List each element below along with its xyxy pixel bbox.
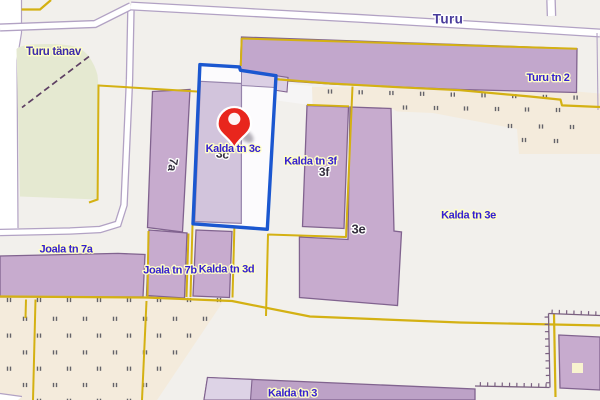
- svg-text:Turu: Turu: [433, 12, 464, 27]
- svg-text:Kalda tn 3c: Kalda tn 3c: [206, 143, 261, 155]
- svg-text:Joala tn 7a: Joala tn 7a: [39, 244, 93, 256]
- svg-text:3e: 3e: [351, 222, 365, 237]
- svg-text:Turu tn 2: Turu tn 2: [526, 72, 569, 84]
- svg-text:Kalda tn 3f: Kalda tn 3f: [284, 156, 337, 168]
- svg-text:Kalda tn 3: Kalda tn 3: [268, 388, 317, 400]
- svg-text:Kalda tn 3d: Kalda tn 3d: [199, 264, 254, 276]
- svg-text:Kalda tn 3e: Kalda tn 3e: [441, 209, 496, 221]
- svg-text:Joala tn 7b: Joala tn 7b: [143, 265, 197, 277]
- svg-text:Turu tänav: Turu tänav: [26, 46, 82, 58]
